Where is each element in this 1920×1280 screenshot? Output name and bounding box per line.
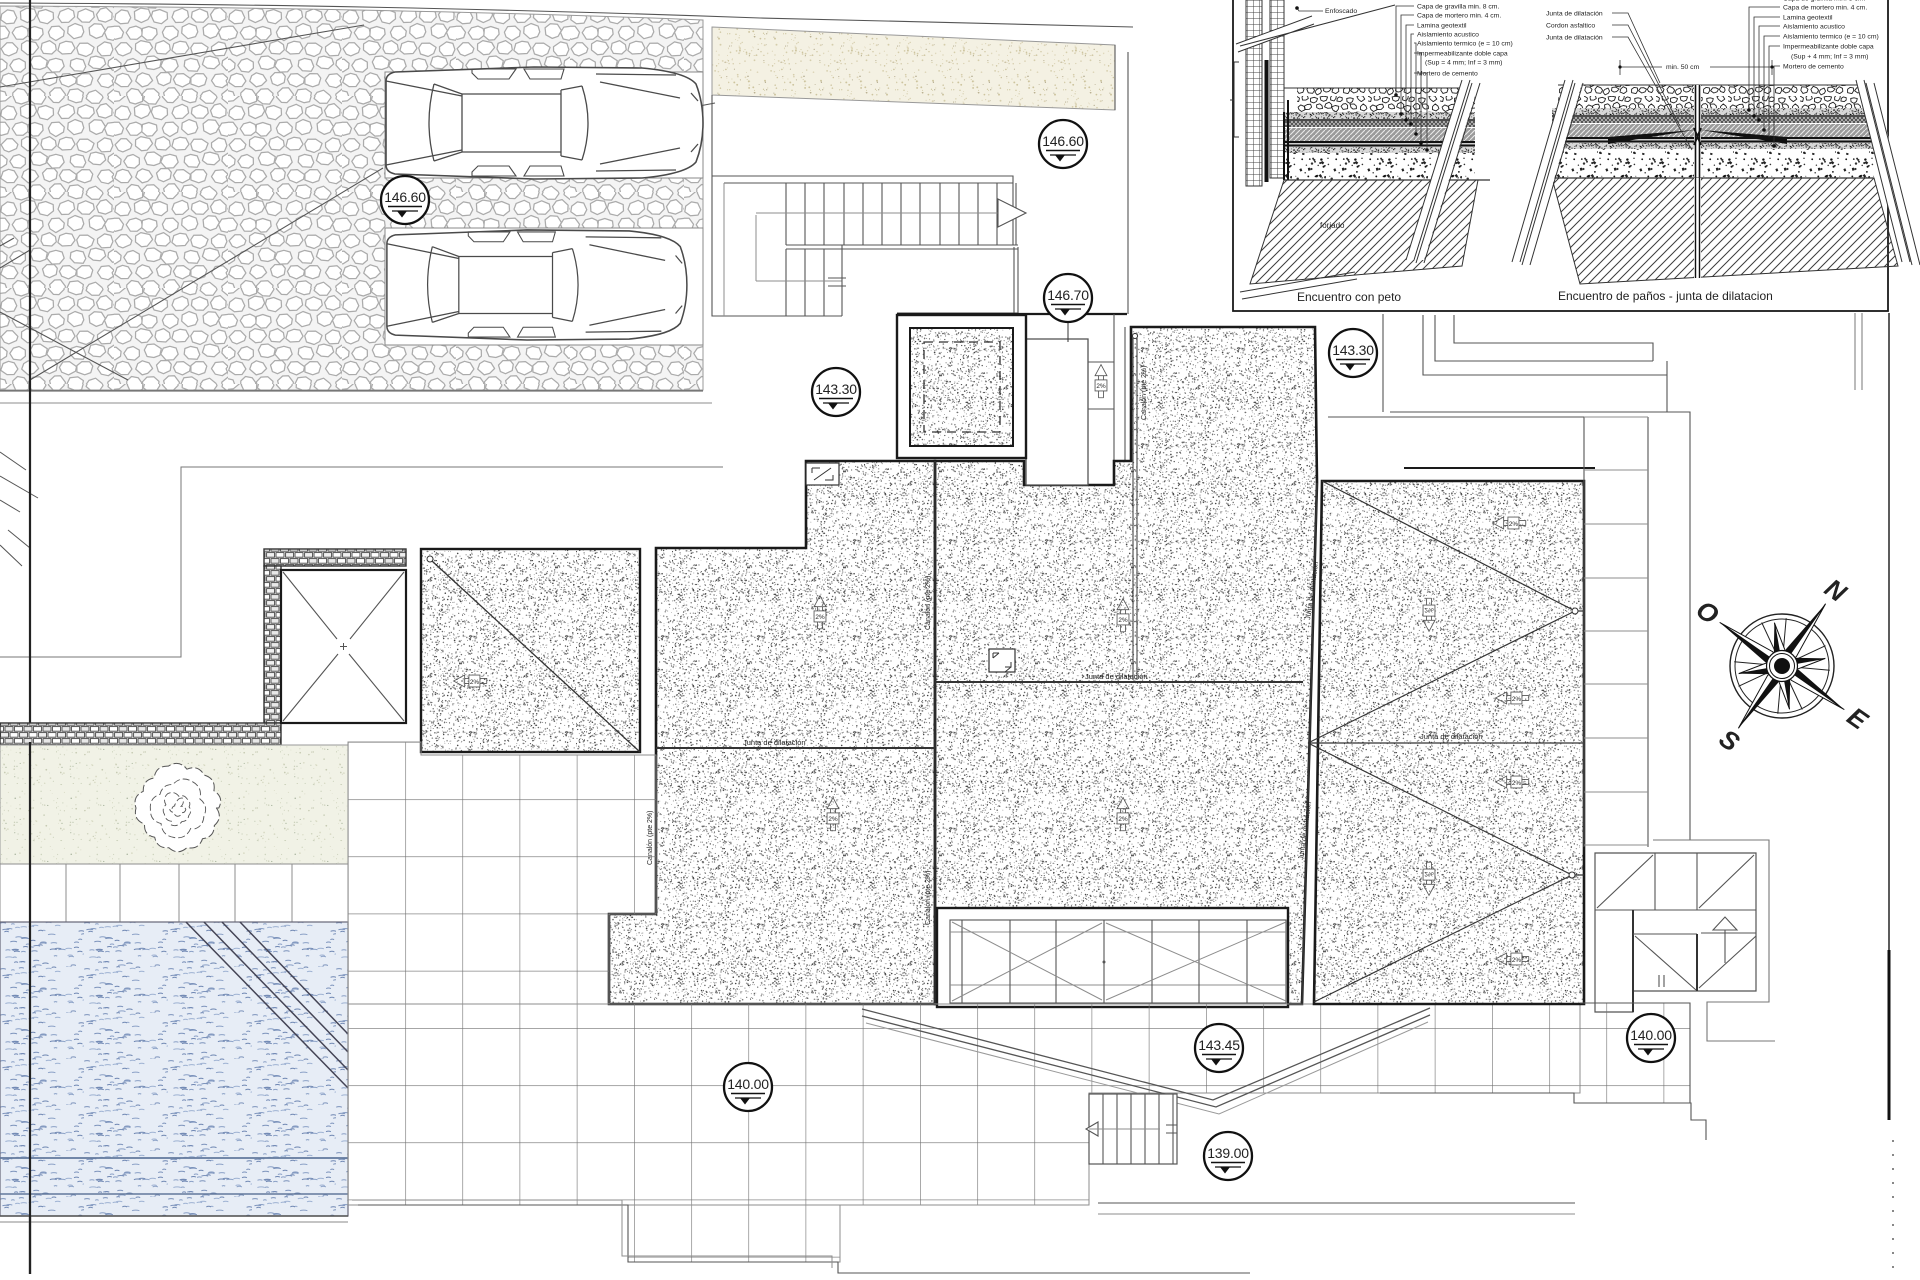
svg-text:146.60: 146.60 — [384, 189, 426, 205]
svg-text:143.45: 143.45 — [1198, 1037, 1240, 1053]
svg-text:(Sup + 4 mm; Inf = 3 mm): (Sup + 4 mm; Inf = 3 mm) — [1791, 54, 1868, 61]
svg-text:Junta de dilatación: Junta de dilatación — [1085, 672, 1148, 681]
svg-text:Lamina geotextil: Lamina geotextil — [1417, 23, 1467, 30]
svg-text:Canalón (pte 2%): Canalón (pte 2%) — [925, 576, 932, 630]
svg-text:2%: 2% — [1118, 617, 1128, 624]
svg-text:146.60: 146.60 — [1042, 133, 1084, 149]
svg-text:Canalón (pte 2%): Canalón (pte 2%) — [925, 871, 932, 925]
svg-text:2%: 2% — [1096, 383, 1106, 390]
svg-text:Junta de dilatación: Junta de dilatación — [1420, 732, 1483, 741]
svg-text:Encuentro con peto: Encuentro con peto — [1297, 290, 1401, 304]
svg-text:2%: 2% — [470, 679, 480, 686]
svg-text:2%: 2% — [1512, 696, 1522, 703]
svg-text:139.00: 139.00 — [1207, 1145, 1249, 1161]
svg-text:2%: 2% — [1424, 870, 1434, 877]
svg-text:143.30: 143.30 — [1332, 342, 1374, 358]
svg-text:2%: 2% — [815, 614, 825, 621]
svg-text:143.30: 143.30 — [815, 381, 857, 397]
svg-text:Aislamiento termico (e = 10 cm: Aislamiento termico (e = 10 cm) — [1783, 34, 1879, 41]
svg-text:2%: 2% — [1509, 521, 1519, 528]
svg-text:Mortero de cemento: Mortero de cemento — [1417, 71, 1478, 78]
svg-text:Capa de gravilla min. 8 cm.: Capa de gravilla min. 8 cm. — [1783, 0, 1865, 3]
svg-text:140.00: 140.00 — [1630, 1027, 1672, 1043]
svg-text:Capa de mortero min. 4 cm.: Capa de mortero min. 4 cm. — [1417, 13, 1501, 20]
svg-text:Aislamiento acustico: Aislamiento acustico — [1783, 24, 1845, 31]
svg-text:min. 50 cm: min. 50 cm — [1666, 64, 1700, 71]
svg-text:forjado: forjado — [1320, 221, 1345, 230]
svg-text:Impermeabilizante doble capa: Impermeabilizante doble capa — [1783, 44, 1874, 51]
svg-text:146.70: 146.70 — [1047, 287, 1089, 303]
svg-text:2%: 2% — [1512, 780, 1522, 787]
svg-text:Capa de gravilla min. 8 cm.: Capa de gravilla min. 8 cm. — [1417, 4, 1499, 11]
svg-text:2%: 2% — [1118, 816, 1128, 823]
svg-text:Lamina geotextil: Lamina geotextil — [1783, 15, 1833, 22]
svg-text:Junta de dilatación: Junta de dilatación — [1546, 11, 1603, 18]
svg-text:Impermeabilizante doble capa: Impermeabilizante doble capa — [1417, 51, 1508, 58]
svg-text:Canalón (pte 2%): Canalón (pte 2%) — [1141, 366, 1148, 420]
svg-text:(Sup = 4 mm; Inf = 3 mm): (Sup = 4 mm; Inf = 3 mm) — [1425, 60, 1502, 67]
svg-text:Capa de mortero min. 4 cm.: Capa de mortero min. 4 cm. — [1783, 5, 1867, 12]
svg-text:Junta de dilatación: Junta de dilatación — [743, 738, 806, 747]
svg-text:Aislamiento termico (e = 10 cm: Aislamiento termico (e = 10 cm) — [1417, 41, 1513, 48]
svg-text:2%: 2% — [1424, 606, 1434, 613]
svg-text:Junta de dilatación: Junta de dilatación — [1546, 35, 1603, 42]
svg-text:Cordon asfaltico: Cordon asfaltico — [1546, 23, 1595, 30]
svg-text:2%: 2% — [1512, 957, 1522, 964]
svg-text:Encuentro de paños - junta de: Encuentro de paños - junta de dilatacion — [1558, 289, 1773, 303]
svg-text:140.00: 140.00 — [727, 1076, 769, 1092]
svg-text:Mortero de cemento: Mortero de cemento — [1783, 64, 1844, 71]
svg-text:Aislamiento acustico: Aislamiento acustico — [1417, 32, 1479, 39]
svg-text:Enfoscado: Enfoscado — [1325, 8, 1357, 15]
svg-text:2%: 2% — [828, 816, 838, 823]
